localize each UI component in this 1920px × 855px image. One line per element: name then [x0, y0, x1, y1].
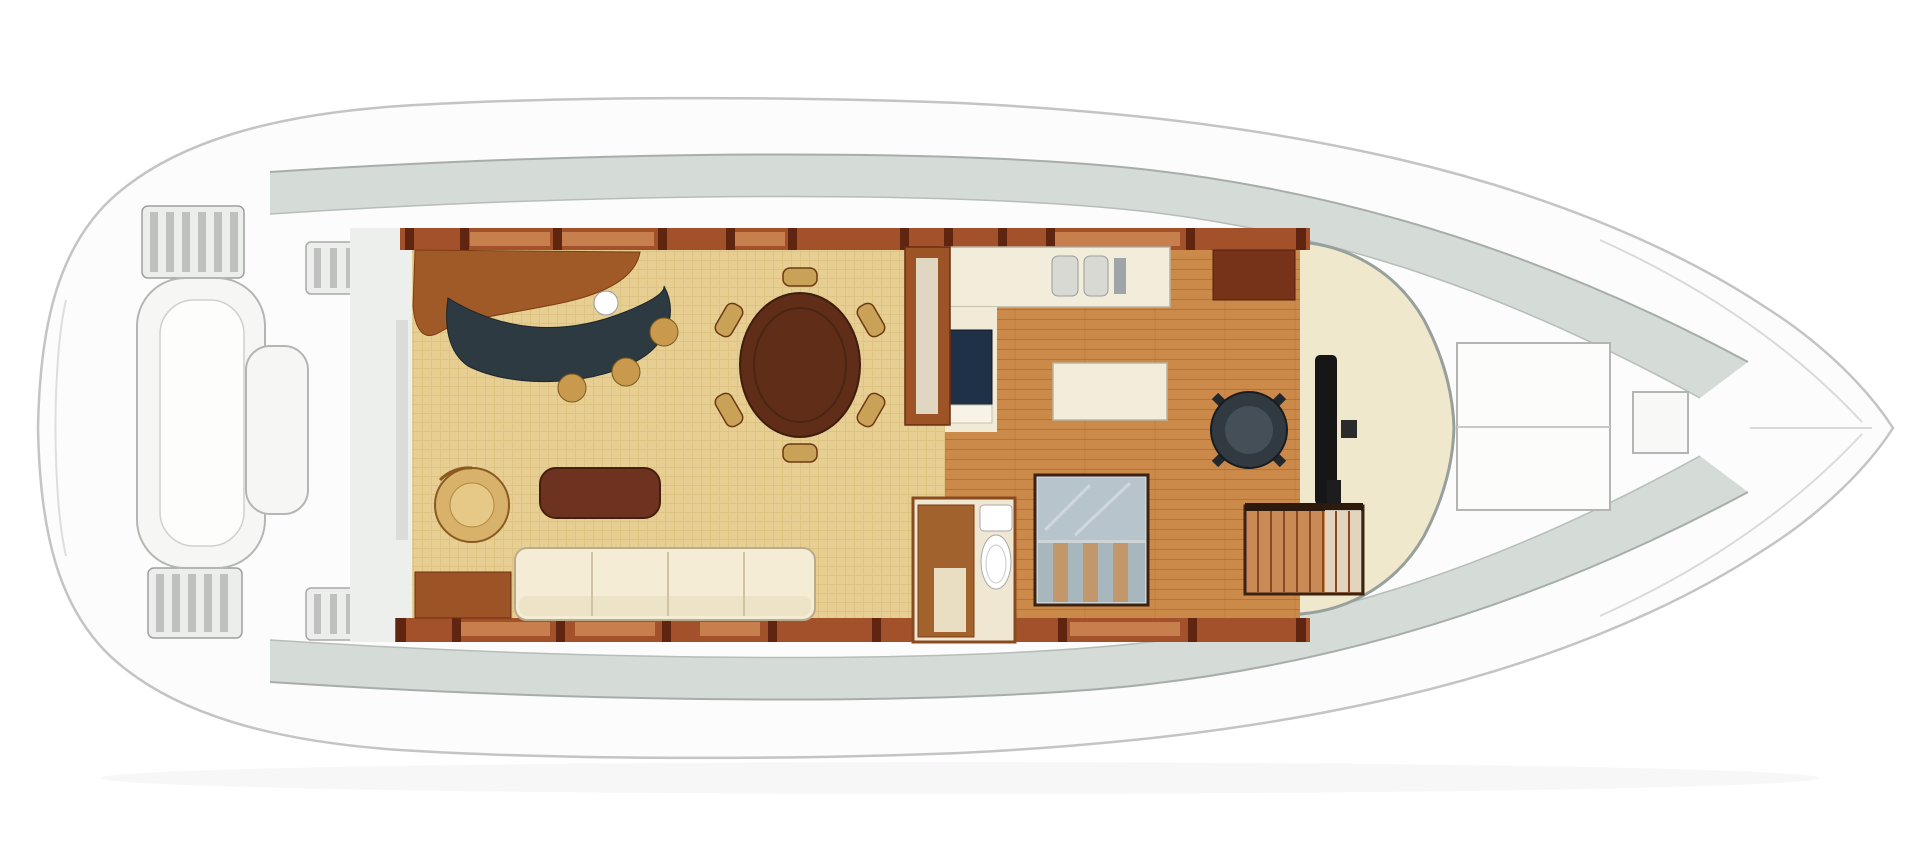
galley-sink-right [1084, 256, 1108, 296]
salon-partition [905, 247, 950, 425]
stairs-treads [1038, 543, 1145, 602]
coffee-table [540, 468, 660, 518]
day-head-sink [934, 568, 966, 632]
partition-door [916, 258, 938, 414]
day-head [913, 498, 1015, 642]
tv-screen [947, 330, 992, 405]
helm-chair [1211, 392, 1287, 468]
yacht-floor-plan [0, 0, 1920, 855]
transom-stairs-port [142, 206, 244, 278]
sofa [515, 548, 815, 620]
galley-faucet [1114, 258, 1126, 294]
galley-island [1053, 363, 1167, 420]
salon-side-cabinet [415, 572, 511, 618]
tv-shelf [950, 405, 992, 423]
stairs-rail-post [1327, 480, 1341, 504]
anchor-locker-hatch [1633, 392, 1688, 453]
galley-cabinet [1213, 250, 1295, 300]
salon-door [396, 320, 408, 540]
aft-deck-bench [246, 346, 308, 514]
hull-shadow [100, 762, 1820, 794]
bar-sink [594, 291, 618, 315]
pilothouse-stairs-light [1325, 510, 1361, 592]
bar-stool [612, 358, 640, 386]
floor-plan-canvas [0, 0, 1920, 855]
dining-table [740, 293, 860, 437]
pilothouse-stairs-rail [1245, 503, 1363, 511]
galley-sink-left [1052, 256, 1078, 296]
sofa-seat-edge [519, 596, 811, 616]
helm-wheel [1341, 420, 1357, 438]
stairs-landing [1038, 478, 1145, 540]
toilet [980, 505, 1012, 589]
bar-stool [558, 374, 586, 402]
companionway-stairs [1035, 475, 1148, 605]
bar-stool [650, 318, 678, 346]
armchair [435, 468, 509, 542]
transom-stairs-starboard [148, 568, 242, 638]
